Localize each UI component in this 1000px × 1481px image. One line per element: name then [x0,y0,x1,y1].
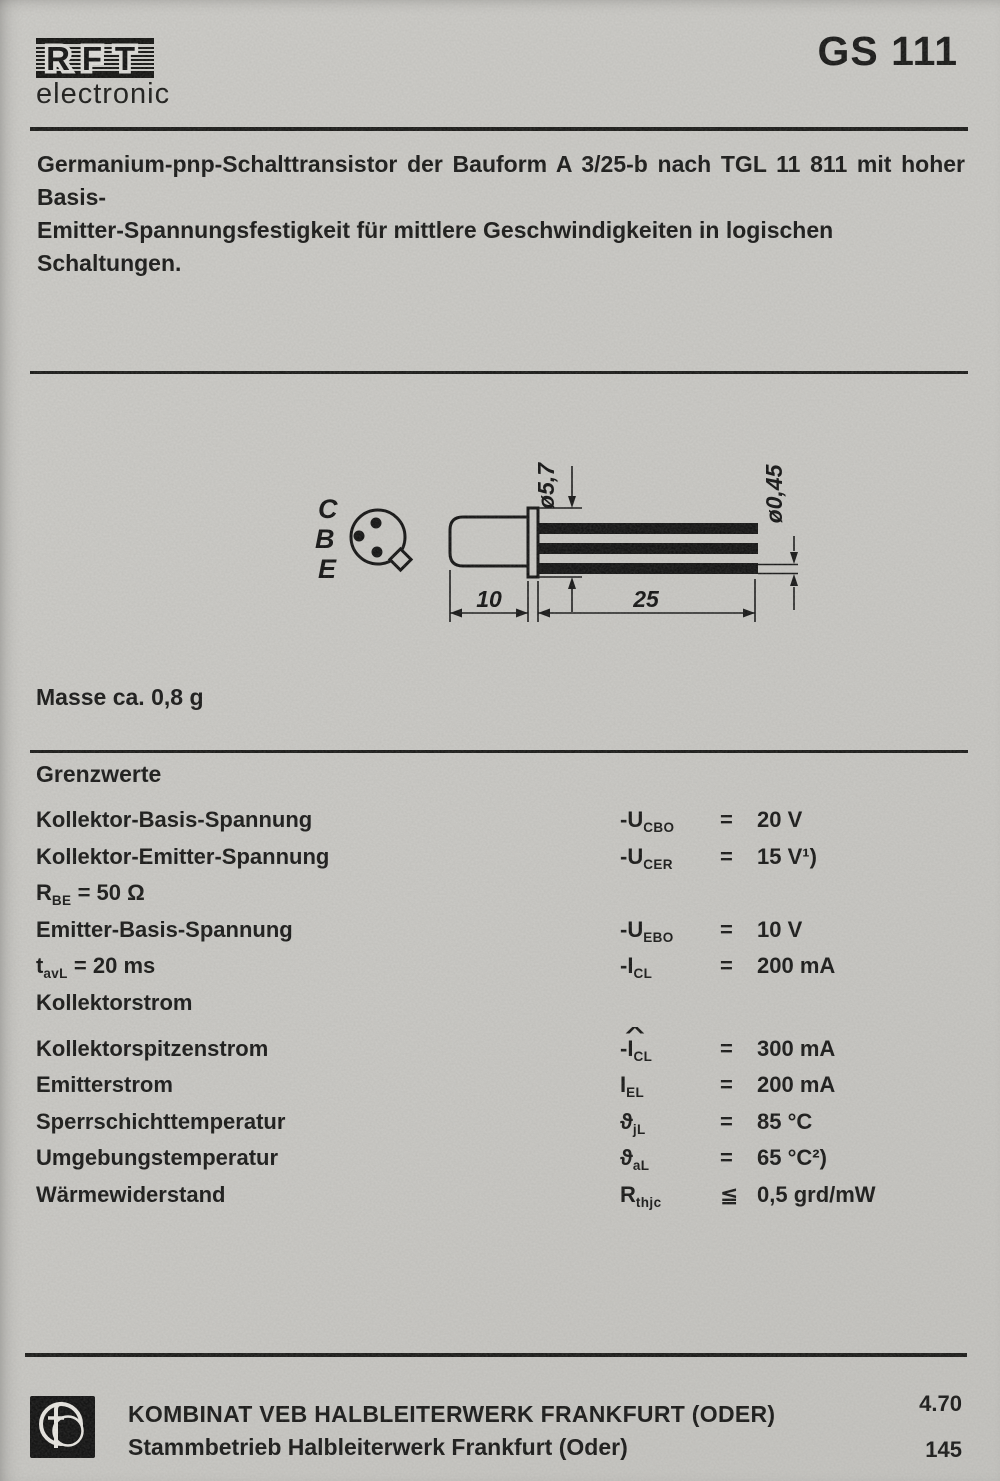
limit-row: Wärmewiderstand Rthjc ≦ 0,5 grd/mW [36,1181,966,1218]
limit-symbol-sub: aL [633,1158,650,1173]
limit-row: Umgebungstemperatur ϑaL = 65 °C²) [36,1144,966,1181]
limit-symbol-sub: CL [633,966,652,981]
page-title: GS 111 [817,28,958,75]
limit-label-sub: avL [43,966,67,981]
limit-value: 300 mA [757,1035,966,1072]
lead-collector [538,523,758,534]
pin-label-emitter: E [318,554,337,584]
pin-dot-collector [371,518,382,529]
rft-letter-f: F [82,40,102,77]
pin-dot-base [354,531,365,542]
limit-symbol-sub: EL [626,1085,644,1100]
pin-label-base: B [315,524,335,554]
case-flange [528,508,538,577]
limit-value: 0,5 grd/mW [757,1181,966,1218]
rft-letter-r: R [46,40,70,77]
dim-body-length: 10 [476,586,502,612]
limit-value [757,989,966,1026]
limit-relation: = [720,1071,757,1108]
footer-company-line-1: KOMBINAT VEB HALBLEITERWERK FRANKFURT (O… [128,1401,775,1428]
limit-value: 10 V [757,916,966,953]
limit-label-rest: = 50 Ω [71,880,144,905]
limit-row: tavL = 20 ms -ICL = 200 mA [36,952,966,989]
limit-value: 20 V [757,806,966,843]
intro-paragraph: Germanium-pnp-Schalttransistor der Baufo… [37,148,965,280]
limits-table: Kollektor-Basis-Spannung -UCBO = 20 V Ko… [36,806,966,1218]
intro-line-2: Emitter-Spannungsfestigkeit für mittlere… [37,214,965,280]
limit-relation [720,989,757,1026]
limit-relation: = [720,916,757,953]
limit-value: 85 °C [757,1108,966,1145]
limit-label-sub: BE [52,893,72,908]
limit-label: Kollektorstrom [36,990,192,1015]
limit-label: Kollektor-Basis-Spannung [36,807,312,832]
manufacturer-logo [30,1396,95,1458]
limits-heading: Grenzwerte [36,761,161,788]
header-rule [30,127,968,131]
limit-symbol-sub: CBO [643,820,674,835]
limit-symbol: ϑ [620,1109,633,1134]
limit-row: Kollektorspitzenstrom ^-ICL = 300 mA [36,1035,966,1072]
footer-rule [25,1353,967,1357]
limit-symbol: -U [620,844,643,869]
limit-row: Emitter-Basis-Spannung -UEBO = 10 V [36,916,966,953]
datasheet-page: R F T electronic GS 111 Germanium-pnp-Sc… [0,0,1000,1481]
footer-company-line-2: Stammbetrieb Halbleiterwerk Frankfurt (O… [128,1434,628,1461]
limit-label: R [36,880,52,905]
dimension-arrows [450,496,798,618]
dim-lead-length: 25 [632,586,660,612]
limit-value [757,879,966,916]
peak-hat: ^ [619,1025,651,1040]
limit-symbol: R [620,1182,636,1207]
limit-label: Kollektorspitzenstrom [36,1036,268,1061]
limit-row: Sperrschichttemperatur ϑjL = 85 °C [36,1108,966,1145]
limit-relation: ≦ [720,1181,757,1218]
limit-label: Emitterstrom [36,1072,173,1097]
limit-row: Kollektor-Basis-Spannung -UCBO = 20 V [36,806,966,843]
limit-label: Sperrschichttemperatur [36,1109,285,1134]
limit-symbol-sub: CER [643,857,673,872]
limit-label: Kollektor-Emitter-Spannung [36,844,329,869]
limit-symbol: ϑ [620,1145,633,1170]
limit-value: 15 V¹) [757,843,966,880]
limit-value: 65 °C²) [757,1144,966,1181]
limit-row: Emitterstrom IEL = 200 mA [36,1071,966,1108]
limit-label: Umgebungstemperatur [36,1145,278,1170]
limit-relation: = [720,1035,757,1072]
limit-relation: = [720,952,757,989]
limit-value: 200 mA [757,952,966,989]
case-body-outline [450,517,528,566]
limit-symbol-sub: EBO [643,930,673,945]
rft-logo: R F T [36,38,156,78]
limit-row: RBE = 50 Ω [36,879,966,916]
limit-symbol: -U [620,807,643,832]
pin-dot-emitter [372,547,383,558]
limit-relation: = [720,843,757,880]
pin-key-tab [390,549,411,570]
limit-relation: = [720,1108,757,1145]
limits-rule [30,750,968,753]
limit-symbol-sub: thjc [636,1195,662,1210]
brand-electronic-text: electronic [36,78,170,111]
limit-row: Kollektor-Emitter-Spannung -UCER = 15 V¹… [36,843,966,880]
lead-emitter [538,563,758,574]
limit-symbol: -U [620,917,643,942]
mass-note: Masse ca. 0,8 g [36,684,204,711]
lead-base [538,543,758,554]
package-drawing: C B E [300,440,820,645]
limit-label: Emitter-Basis-Spannung [36,917,293,942]
limit-row: Kollektorstrom [36,989,966,1026]
limit-symbol: -I [620,953,633,978]
dim-flange-diameter: ø5,7 [533,462,559,509]
limit-relation: = [720,1144,757,1181]
limit-symbol-sub: CL [633,1049,652,1064]
limit-value: 200 mA [757,1071,966,1108]
pin-label-collector: C [318,494,338,524]
section-rule-top [30,371,968,374]
limit-relation: = [720,806,757,843]
footer-page-number: 145 [925,1437,962,1463]
limit-symbol-sub: jL [633,1122,646,1137]
dim-lead-diameter: ø0,45 [761,463,787,523]
intro-line-1: Germanium-pnp-Schalttransistor der Baufo… [37,148,965,214]
limit-label: Wärmewiderstand [36,1182,226,1207]
rft-letter-t: T [115,40,135,77]
limit-label-rest: = 20 ms [68,953,155,978]
footer-issue-date: 4.70 [919,1391,962,1417]
limit-relation [720,879,757,916]
